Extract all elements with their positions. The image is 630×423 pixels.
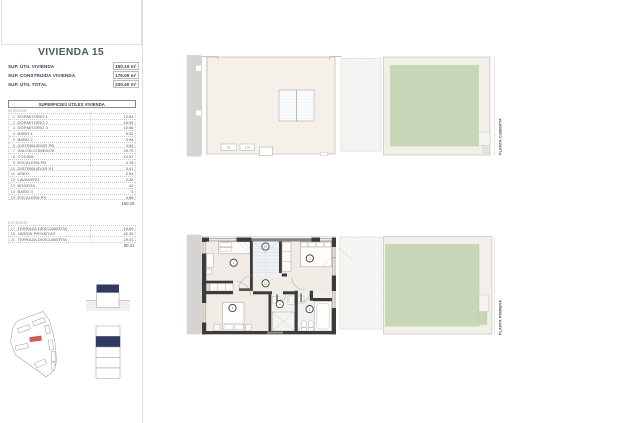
svg-text:09: 09	[227, 146, 231, 150]
svg-text:170: 170	[245, 146, 250, 150]
svg-text:PLANTA CUBIERTA: PLANTA CUBIERTA	[499, 118, 503, 155]
svg-text:PLANTA PRIMERA: PLANTA PRIMERA	[499, 300, 503, 335]
